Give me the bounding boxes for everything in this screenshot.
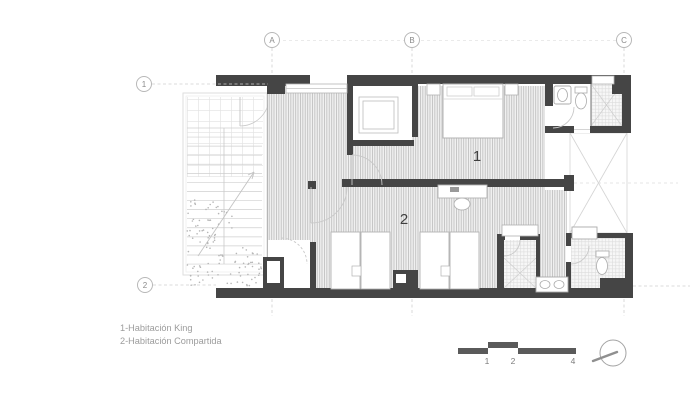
scale-bar: 1 2 4 (458, 342, 576, 366)
scale-tick-4: 4 (571, 356, 576, 366)
toilet-tank (596, 251, 609, 257)
terrace (183, 93, 269, 286)
window-bath (592, 76, 614, 84)
desk (438, 185, 487, 198)
shower-tray (572, 227, 597, 239)
blueprint-canvas: A B C 1 2 1 2 1-Habitación King 2-Habita… (0, 0, 700, 420)
grid-label-b: B (409, 36, 414, 45)
closet-interior (353, 86, 412, 140)
legend-line-2: 2-Habitación Compartida (120, 336, 223, 346)
twin-bed (420, 232, 449, 289)
twin-bed (361, 232, 390, 289)
desk-item (450, 187, 459, 192)
chair (454, 198, 470, 210)
nightstand-left (427, 84, 440, 95)
grid-label-2: 2 (143, 281, 148, 290)
floor-plan-drawing: A B C 1 2 1 2 1-Habitación King 2-Habita… (0, 0, 700, 420)
toilet-bowl (576, 93, 587, 109)
door-arc-bath-top (553, 107, 574, 128)
wall-right-top (622, 75, 631, 133)
room-1-number: 1 (473, 148, 481, 165)
north-indicator (593, 340, 626, 366)
closet-bath-a (502, 225, 538, 236)
pillow (474, 87, 499, 96)
corridor-floor-hatch (545, 190, 567, 288)
scale-tick-1: 1 (485, 356, 490, 366)
room-2-number: 2 (400, 211, 408, 228)
toilet-bowl (597, 258, 608, 275)
vanity-sink (554, 281, 564, 289)
legend-line-1: 1-Habitación King (120, 323, 193, 333)
twin-bed (450, 232, 479, 289)
bath-a-floor (504, 240, 536, 288)
pillow (447, 87, 472, 96)
grid-label-1: 1 (142, 80, 147, 89)
twin-bed (331, 232, 360, 289)
sink-bowl (558, 89, 568, 102)
wall-top-bed (418, 75, 545, 84)
toilet-tank (575, 87, 587, 93)
legend: 1-Habitación King 2-Habitación Compartid… (120, 323, 223, 346)
duct-box (267, 261, 280, 283)
stair-direction-line (198, 172, 254, 256)
scale-tick-2: 2 (511, 356, 516, 366)
wall-top-closet (347, 75, 418, 86)
vanity-sink (540, 281, 550, 289)
grid-label-a: A (269, 36, 275, 45)
grid-label-c: C (621, 36, 627, 45)
nightstand-right (505, 84, 518, 95)
